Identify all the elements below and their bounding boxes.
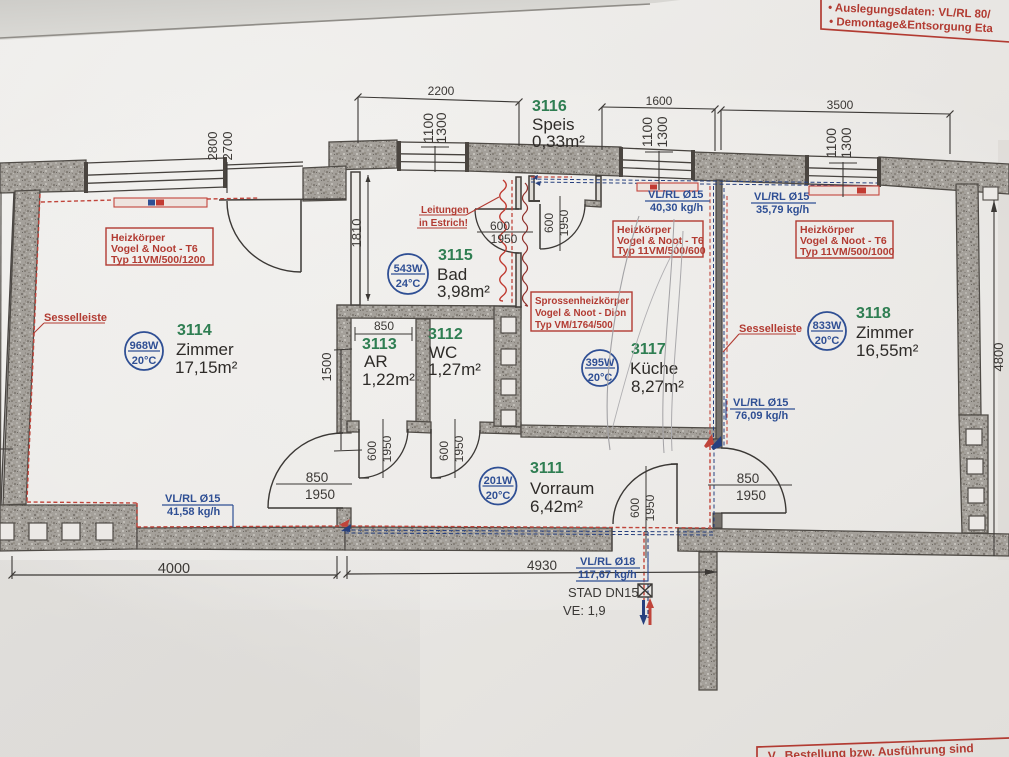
- svg-text:4800: 4800: [991, 343, 1006, 372]
- svg-text:3112: 3112: [428, 326, 463, 343]
- svg-text:600: 600: [628, 498, 642, 518]
- svg-text:201W: 201W: [484, 475, 513, 487]
- svg-text:16,55m²: 16,55m²: [856, 341, 919, 360]
- svg-text:VL/RL Ø15: VL/RL Ø15: [648, 189, 703, 201]
- svg-text:17,15m²: 17,15m²: [175, 358, 238, 377]
- svg-text:1950: 1950: [643, 494, 657, 521]
- svg-text:600: 600: [365, 441, 379, 461]
- svg-text:1100: 1100: [823, 128, 839, 158]
- svg-text:1,27m²: 1,27m²: [428, 360, 481, 379]
- svg-text:Sprossenheizkörper: Sprossenheizkörper: [535, 296, 629, 307]
- svg-text:3115: 3115: [438, 247, 473, 264]
- svg-text:2700: 2700: [220, 132, 235, 161]
- svg-text:Vogel & Noot - Dion: Vogel & Noot - Dion: [535, 308, 626, 319]
- svg-text:Typ 11VM/500/1000: Typ 11VM/500/1000: [800, 246, 895, 258]
- svg-text:850: 850: [374, 319, 394, 333]
- svg-text:Sesselleiste: Sesselleiste: [739, 323, 802, 335]
- svg-text:40,30 kg/h: 40,30 kg/h: [650, 202, 703, 214]
- svg-text:1950: 1950: [736, 488, 766, 503]
- svg-text:20°C: 20°C: [486, 490, 511, 502]
- svg-text:VL/RL Ø15: VL/RL Ø15: [754, 191, 809, 203]
- svg-text:VL/RL Ø15: VL/RL Ø15: [733, 397, 788, 409]
- svg-text:600: 600: [542, 213, 556, 233]
- svg-text:1500: 1500: [319, 353, 334, 382]
- svg-text:1600: 1600: [646, 94, 673, 108]
- svg-text:24°C: 24°C: [396, 278, 421, 290]
- svg-text:3113: 3113: [362, 336, 397, 353]
- svg-text:6,42m²: 6,42m²: [530, 497, 583, 516]
- svg-text:4930: 4930: [527, 558, 557, 573]
- svg-text:2200: 2200: [428, 84, 455, 98]
- svg-text:20°C: 20°C: [815, 335, 840, 347]
- svg-text:3500: 3500: [827, 98, 854, 112]
- svg-text:4000: 4000: [158, 561, 190, 577]
- svg-text:STAD DN15: STAD DN15: [568, 585, 639, 600]
- svg-text:20°C: 20°C: [132, 355, 157, 367]
- svg-text:Typ 11VM/500/1200: Typ 11VM/500/1200: [111, 254, 206, 266]
- svg-text:41,58 kg/h: 41,58 kg/h: [167, 506, 220, 518]
- svg-text:1810: 1810: [349, 219, 364, 248]
- svg-text:VL/RL Ø18: VL/RL Ø18: [580, 556, 635, 568]
- svg-text:Typ VM/1764/500: Typ VM/1764/500: [535, 320, 613, 331]
- svg-text:3114: 3114: [177, 322, 212, 339]
- svg-text:600: 600: [437, 441, 451, 461]
- svg-text:850: 850: [737, 471, 760, 486]
- svg-text:Leitungen: Leitungen: [421, 205, 469, 216]
- svg-text:3111: 3111: [530, 460, 564, 477]
- svg-text:1100: 1100: [639, 117, 655, 147]
- svg-text:VL/RL Ø15: VL/RL Ø15: [165, 493, 220, 505]
- svg-text:1,22m²: 1,22m²: [362, 370, 415, 389]
- svg-text:968W: 968W: [130, 340, 159, 352]
- svg-text:3116: 3116: [532, 98, 567, 115]
- svg-text:76,09 kg/h: 76,09 kg/h: [735, 410, 788, 422]
- svg-text:1950: 1950: [491, 232, 518, 246]
- svg-text:850: 850: [306, 470, 329, 485]
- svg-text:35,79 kg/h: 35,79 kg/h: [756, 204, 809, 216]
- svg-text:in Estrich!: in Estrich!: [419, 218, 468, 229]
- svg-text:8,27m²: 8,27m²: [631, 377, 684, 396]
- svg-text:1950: 1950: [305, 487, 335, 502]
- svg-text:395W: 395W: [586, 357, 615, 369]
- svg-text:1300: 1300: [838, 127, 854, 158]
- svg-text:Zimmer: Zimmer: [856, 323, 914, 342]
- svg-text:1300: 1300: [654, 116, 670, 147]
- svg-text:Küche: Küche: [630, 359, 678, 378]
- svg-text:1950: 1950: [380, 435, 394, 462]
- svg-text:AR: AR: [364, 352, 388, 371]
- svg-text:1950: 1950: [557, 209, 571, 236]
- svg-text:3118: 3118: [856, 305, 891, 322]
- svg-text:0,33m²: 0,33m²: [532, 132, 585, 151]
- svg-text:Sesselleiste: Sesselleiste: [44, 312, 107, 324]
- svg-text:117,67 kg/h: 117,67 kg/h: [578, 569, 637, 581]
- svg-text:VE: 1,9: VE: 1,9: [563, 603, 606, 618]
- svg-text:3,98m²: 3,98m²: [437, 282, 490, 301]
- svg-text:2800: 2800: [205, 132, 220, 161]
- svg-text:Vorraum: Vorraum: [530, 479, 594, 498]
- svg-text:600: 600: [490, 219, 510, 233]
- svg-text:833W: 833W: [813, 320, 842, 332]
- svg-text:Zimmer: Zimmer: [176, 340, 234, 359]
- svg-text:543W: 543W: [394, 263, 423, 275]
- svg-text:1950: 1950: [452, 435, 466, 462]
- svg-text:1300: 1300: [433, 112, 449, 143]
